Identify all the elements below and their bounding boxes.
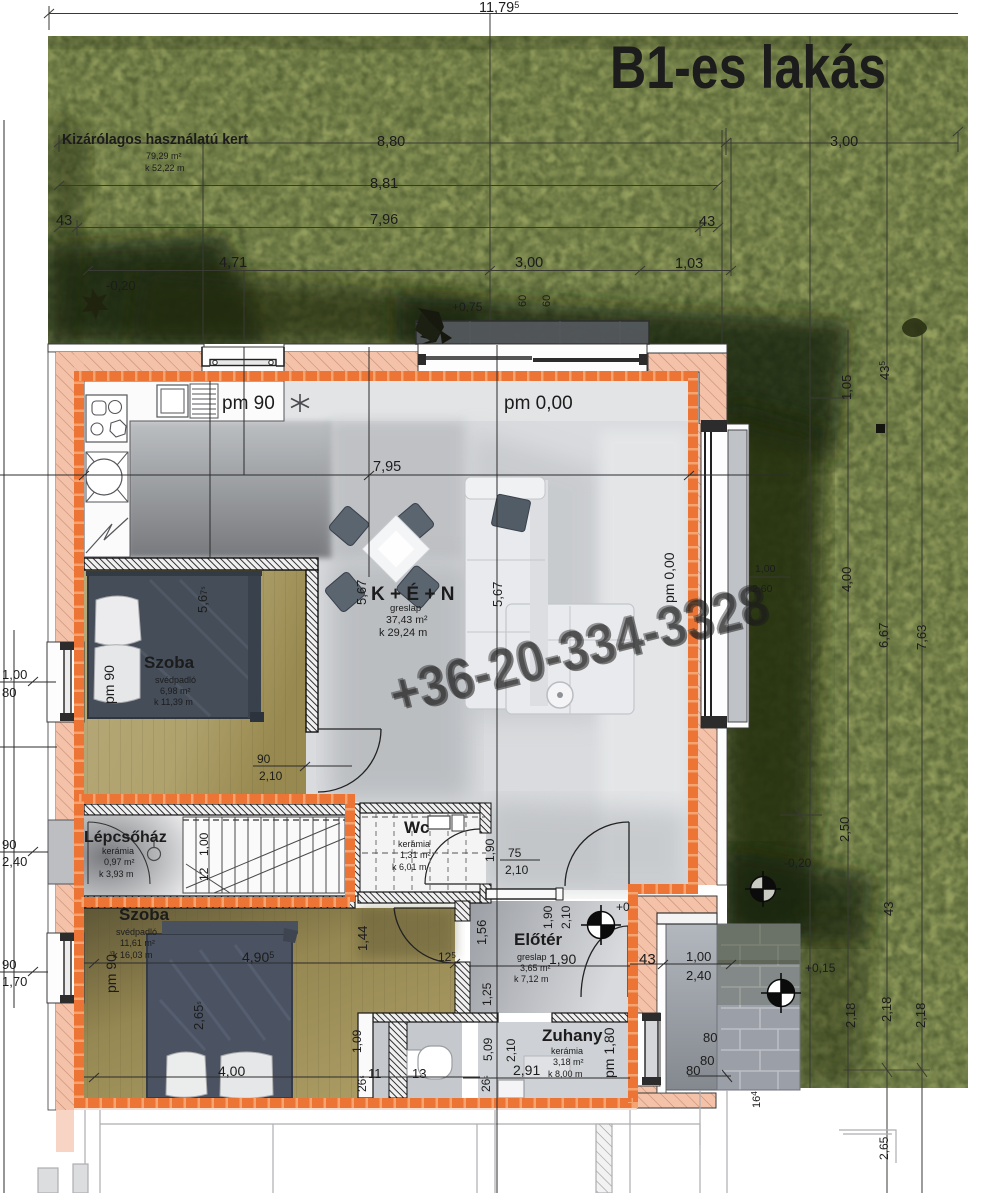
svg-text:80: 80 — [2, 685, 16, 700]
svg-text:k 7,12 m: k 7,12 m — [514, 974, 549, 984]
svg-text:+0,75: +0,75 — [452, 300, 483, 314]
svg-text:1,25: 1,25 — [480, 982, 494, 1006]
svg-text:2,10: 2,10 — [505, 863, 529, 877]
svg-text:1,00: 1,00 — [197, 832, 211, 856]
svg-text:K + É + N: K + É + N — [371, 583, 454, 605]
svg-text:B1-es lakás: B1-es lakás — [610, 34, 886, 101]
svg-text:1,05: 1,05 — [839, 375, 854, 400]
svg-text:90: 90 — [257, 752, 271, 766]
svg-text:k 52,22 m: k 52,22 m — [145, 163, 185, 173]
svg-text:3,00: 3,00 — [830, 134, 858, 150]
svg-text:75: 75 — [508, 846, 522, 860]
svg-text:2,65⁵: 2,65⁵ — [191, 1001, 206, 1030]
svg-text:11,61 m²: 11,61 m² — [120, 938, 155, 948]
svg-text:Szoba: Szoba — [119, 905, 170, 924]
svg-text:60: 60 — [517, 295, 529, 307]
svg-text:1,09: 1,09 — [350, 1029, 364, 1053]
svg-text:80: 80 — [703, 1030, 717, 1045]
svg-text:2,40: 2,40 — [686, 968, 711, 983]
svg-text:7,63: 7,63 — [914, 625, 929, 650]
svg-text:Lépcsőház: Lépcsőház — [84, 829, 167, 846]
svg-text:k 29,24 m: k 29,24 m — [379, 627, 427, 639]
svg-text:2,10: 2,10 — [559, 905, 573, 929]
svg-text:+0,15: +0,15 — [805, 961, 836, 975]
svg-text:1,00: 1,00 — [2, 667, 27, 682]
svg-text:pm 90: pm 90 — [101, 665, 117, 704]
svg-text:5,67: 5,67 — [490, 582, 505, 607]
svg-text:43: 43 — [699, 214, 715, 230]
svg-text:12: 12 — [197, 867, 211, 881]
svg-text:80: 80 — [686, 1063, 700, 1078]
svg-text:11: 11 — [368, 1066, 382, 1081]
svg-text:11,795: 11,795 — [479, 0, 519, 16]
svg-text:80: 80 — [700, 1053, 714, 1068]
svg-text:2,50: 2,50 — [837, 817, 852, 842]
svg-text:-0,20: -0,20 — [784, 856, 812, 870]
svg-text:3,18 m²: 3,18 m² — [553, 1057, 584, 1067]
svg-text:1,00: 1,00 — [686, 949, 711, 964]
svg-text:60: 60 — [541, 295, 553, 307]
svg-text:7,96: 7,96 — [370, 212, 398, 228]
svg-text:1,90: 1,90 — [541, 905, 555, 929]
svg-text:-0,20: -0,20 — [106, 278, 136, 293]
svg-text:1,31 m²: 1,31 m² — [400, 850, 431, 860]
svg-text:90: 90 — [2, 957, 16, 972]
svg-text:2,18: 2,18 — [913, 1003, 928, 1028]
svg-text:greslap: greslap — [517, 952, 547, 962]
svg-text:90: 90 — [2, 837, 16, 852]
svg-text:3,65 m²: 3,65 m² — [520, 963, 551, 973]
svg-text:8,80: 8,80 — [377, 134, 405, 150]
svg-text:43: 43 — [56, 213, 72, 229]
svg-text:kerámia: kerámia — [102, 846, 134, 856]
svg-text:43: 43 — [881, 902, 896, 916]
svg-text:Szoba: Szoba — [144, 653, 195, 672]
svg-text:1,90: 1,90 — [483, 838, 497, 862]
svg-text:greslap: greslap — [390, 603, 421, 614]
svg-text:+0: +0 — [616, 900, 630, 914]
svg-text:kerámia: kerámia — [551, 1046, 583, 1056]
svg-text:pm 0,00: pm 0,00 — [504, 393, 573, 414]
svg-text:2,65: 2,65 — [877, 1136, 891, 1160]
svg-text:6,98 m²: 6,98 m² — [160, 686, 191, 696]
svg-text:2,91: 2,91 — [513, 1062, 540, 1078]
svg-text:8,81: 8,81 — [370, 176, 398, 192]
svg-text:1,56: 1,56 — [474, 920, 489, 945]
svg-text:k 11,39 m: k 11,39 m — [154, 697, 193, 707]
svg-text:pm 90: pm 90 — [222, 393, 275, 414]
svg-text:4,00: 4,00 — [218, 1063, 245, 1079]
svg-text:5,09: 5,09 — [481, 1037, 495, 1061]
svg-text:Kizárólagos használatú kert: Kizárólagos használatú kert — [62, 132, 248, 148]
svg-text:Előtér: Előtér — [514, 930, 563, 949]
svg-text:Zuhany: Zuhany — [542, 1026, 603, 1045]
svg-text:2,10: 2,10 — [504, 1038, 518, 1062]
svg-text:7,95: 7,95 — [373, 459, 401, 475]
svg-text:k 3,93 m: k 3,93 m — [99, 869, 134, 879]
svg-text:k 6,01 m: k 6,01 m — [392, 862, 427, 872]
svg-text:1,70: 1,70 — [2, 974, 27, 989]
svg-text:79,29 m²: 79,29 m² — [146, 151, 182, 161]
svg-text:2,18: 2,18 — [843, 1003, 858, 1028]
svg-text:0,97 m²: 0,97 m² — [104, 857, 135, 867]
svg-text:Wc: Wc — [404, 818, 430, 837]
svg-text:37,43 m²: 37,43 m² — [386, 614, 428, 626]
svg-text:svédpadló: svédpadló — [155, 675, 196, 685]
svg-text:pm 90⁵: pm 90⁵ — [103, 950, 119, 993]
svg-text:3,00: 3,00 — [515, 255, 543, 271]
svg-text:2,10: 2,10 — [259, 769, 283, 783]
svg-text:svédpadló: svédpadló — [116, 927, 157, 937]
svg-text:6,67: 6,67 — [876, 623, 891, 648]
svg-text:2,18: 2,18 — [879, 997, 894, 1022]
svg-text:4,71: 4,71 — [219, 255, 247, 271]
svg-text:13: 13 — [412, 1066, 426, 1081]
svg-text:kerámia: kerámia — [398, 839, 430, 849]
svg-text:2,40: 2,40 — [2, 854, 27, 869]
svg-text:1,90: 1,90 — [549, 951, 576, 967]
svg-text:1,03: 1,03 — [675, 256, 703, 272]
svg-text:4,00: 4,00 — [839, 567, 854, 592]
svg-text:43: 43 — [639, 951, 656, 968]
svg-text:1,44: 1,44 — [355, 926, 370, 951]
svg-text:k 8,00 m: k 8,00 m — [548, 1069, 583, 1079]
svg-text:pm 1,80: pm 1,80 — [601, 1027, 617, 1078]
svg-text:5,67: 5,67 — [354, 580, 369, 605]
